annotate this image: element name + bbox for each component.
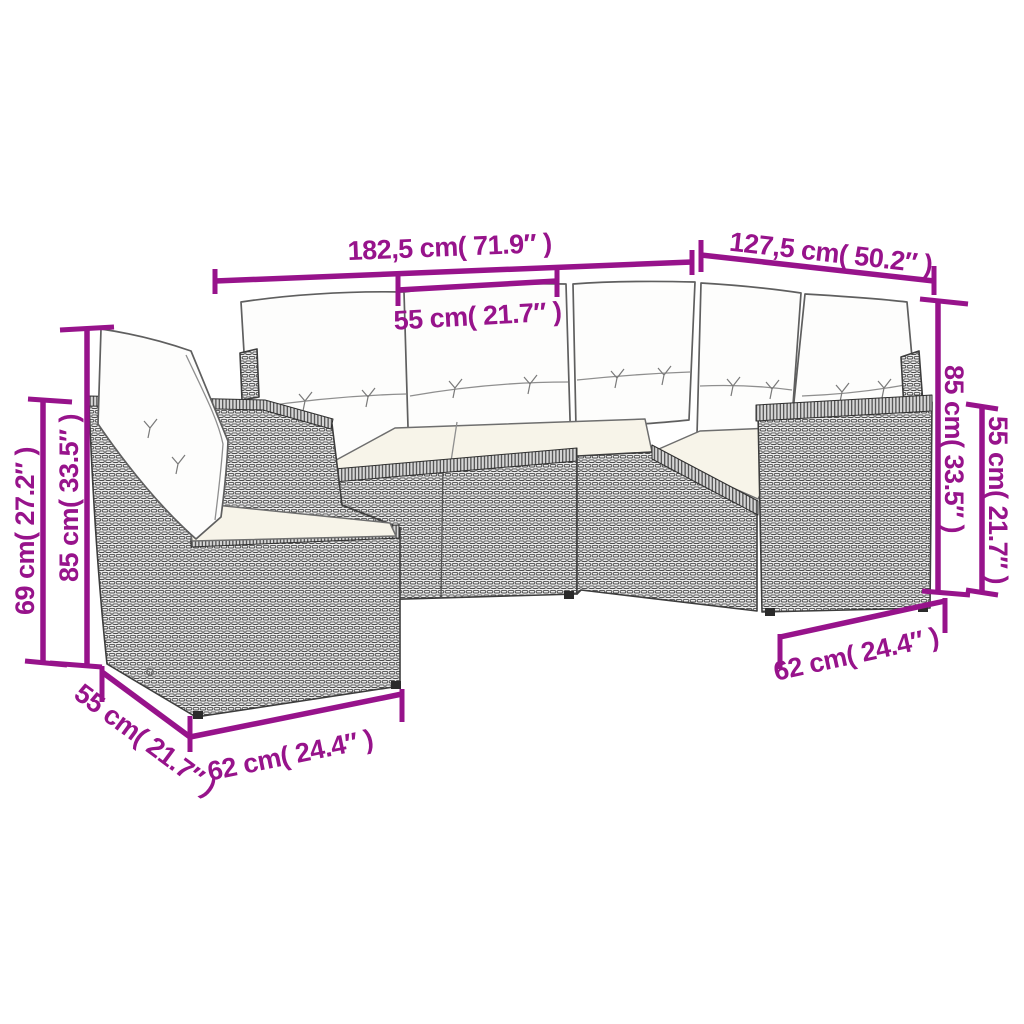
right-arm-block [758, 402, 932, 612]
chair-foot [391, 681, 401, 689]
back-cushion-3 [573, 281, 695, 428]
dim-label-left-total-height: 85 cm( 33.5″ ) [54, 414, 84, 582]
dim-label-right-total-height: 85 cm( 33.5″ ) [939, 365, 969, 533]
diagram-svg: 182,5 cm( 71.9″ ) 127,5 cm( 50.2″ ) 55 c… [0, 0, 1024, 1024]
dim-label-right-arm-height: 55 cm( 21.7″ ) [983, 416, 1013, 584]
dim-label-top-width: 182,5 cm( 71.9″ ) [347, 228, 552, 266]
chair-foot [193, 711, 203, 719]
dim-label-left-back-height: 69 cm( 27.2″ ) [10, 447, 40, 615]
back-post-left [240, 349, 259, 400]
product-dimension-diagram: 182,5 cm( 71.9″ ) 127,5 cm( 50.2″ ) 55 c… [0, 0, 1024, 1024]
dim-label-left-seat-depth: 62 cm( 24.4″ ) [205, 724, 376, 787]
dimension-right-arm-height: 55 cm( 21.7″ ) [966, 404, 1013, 595]
